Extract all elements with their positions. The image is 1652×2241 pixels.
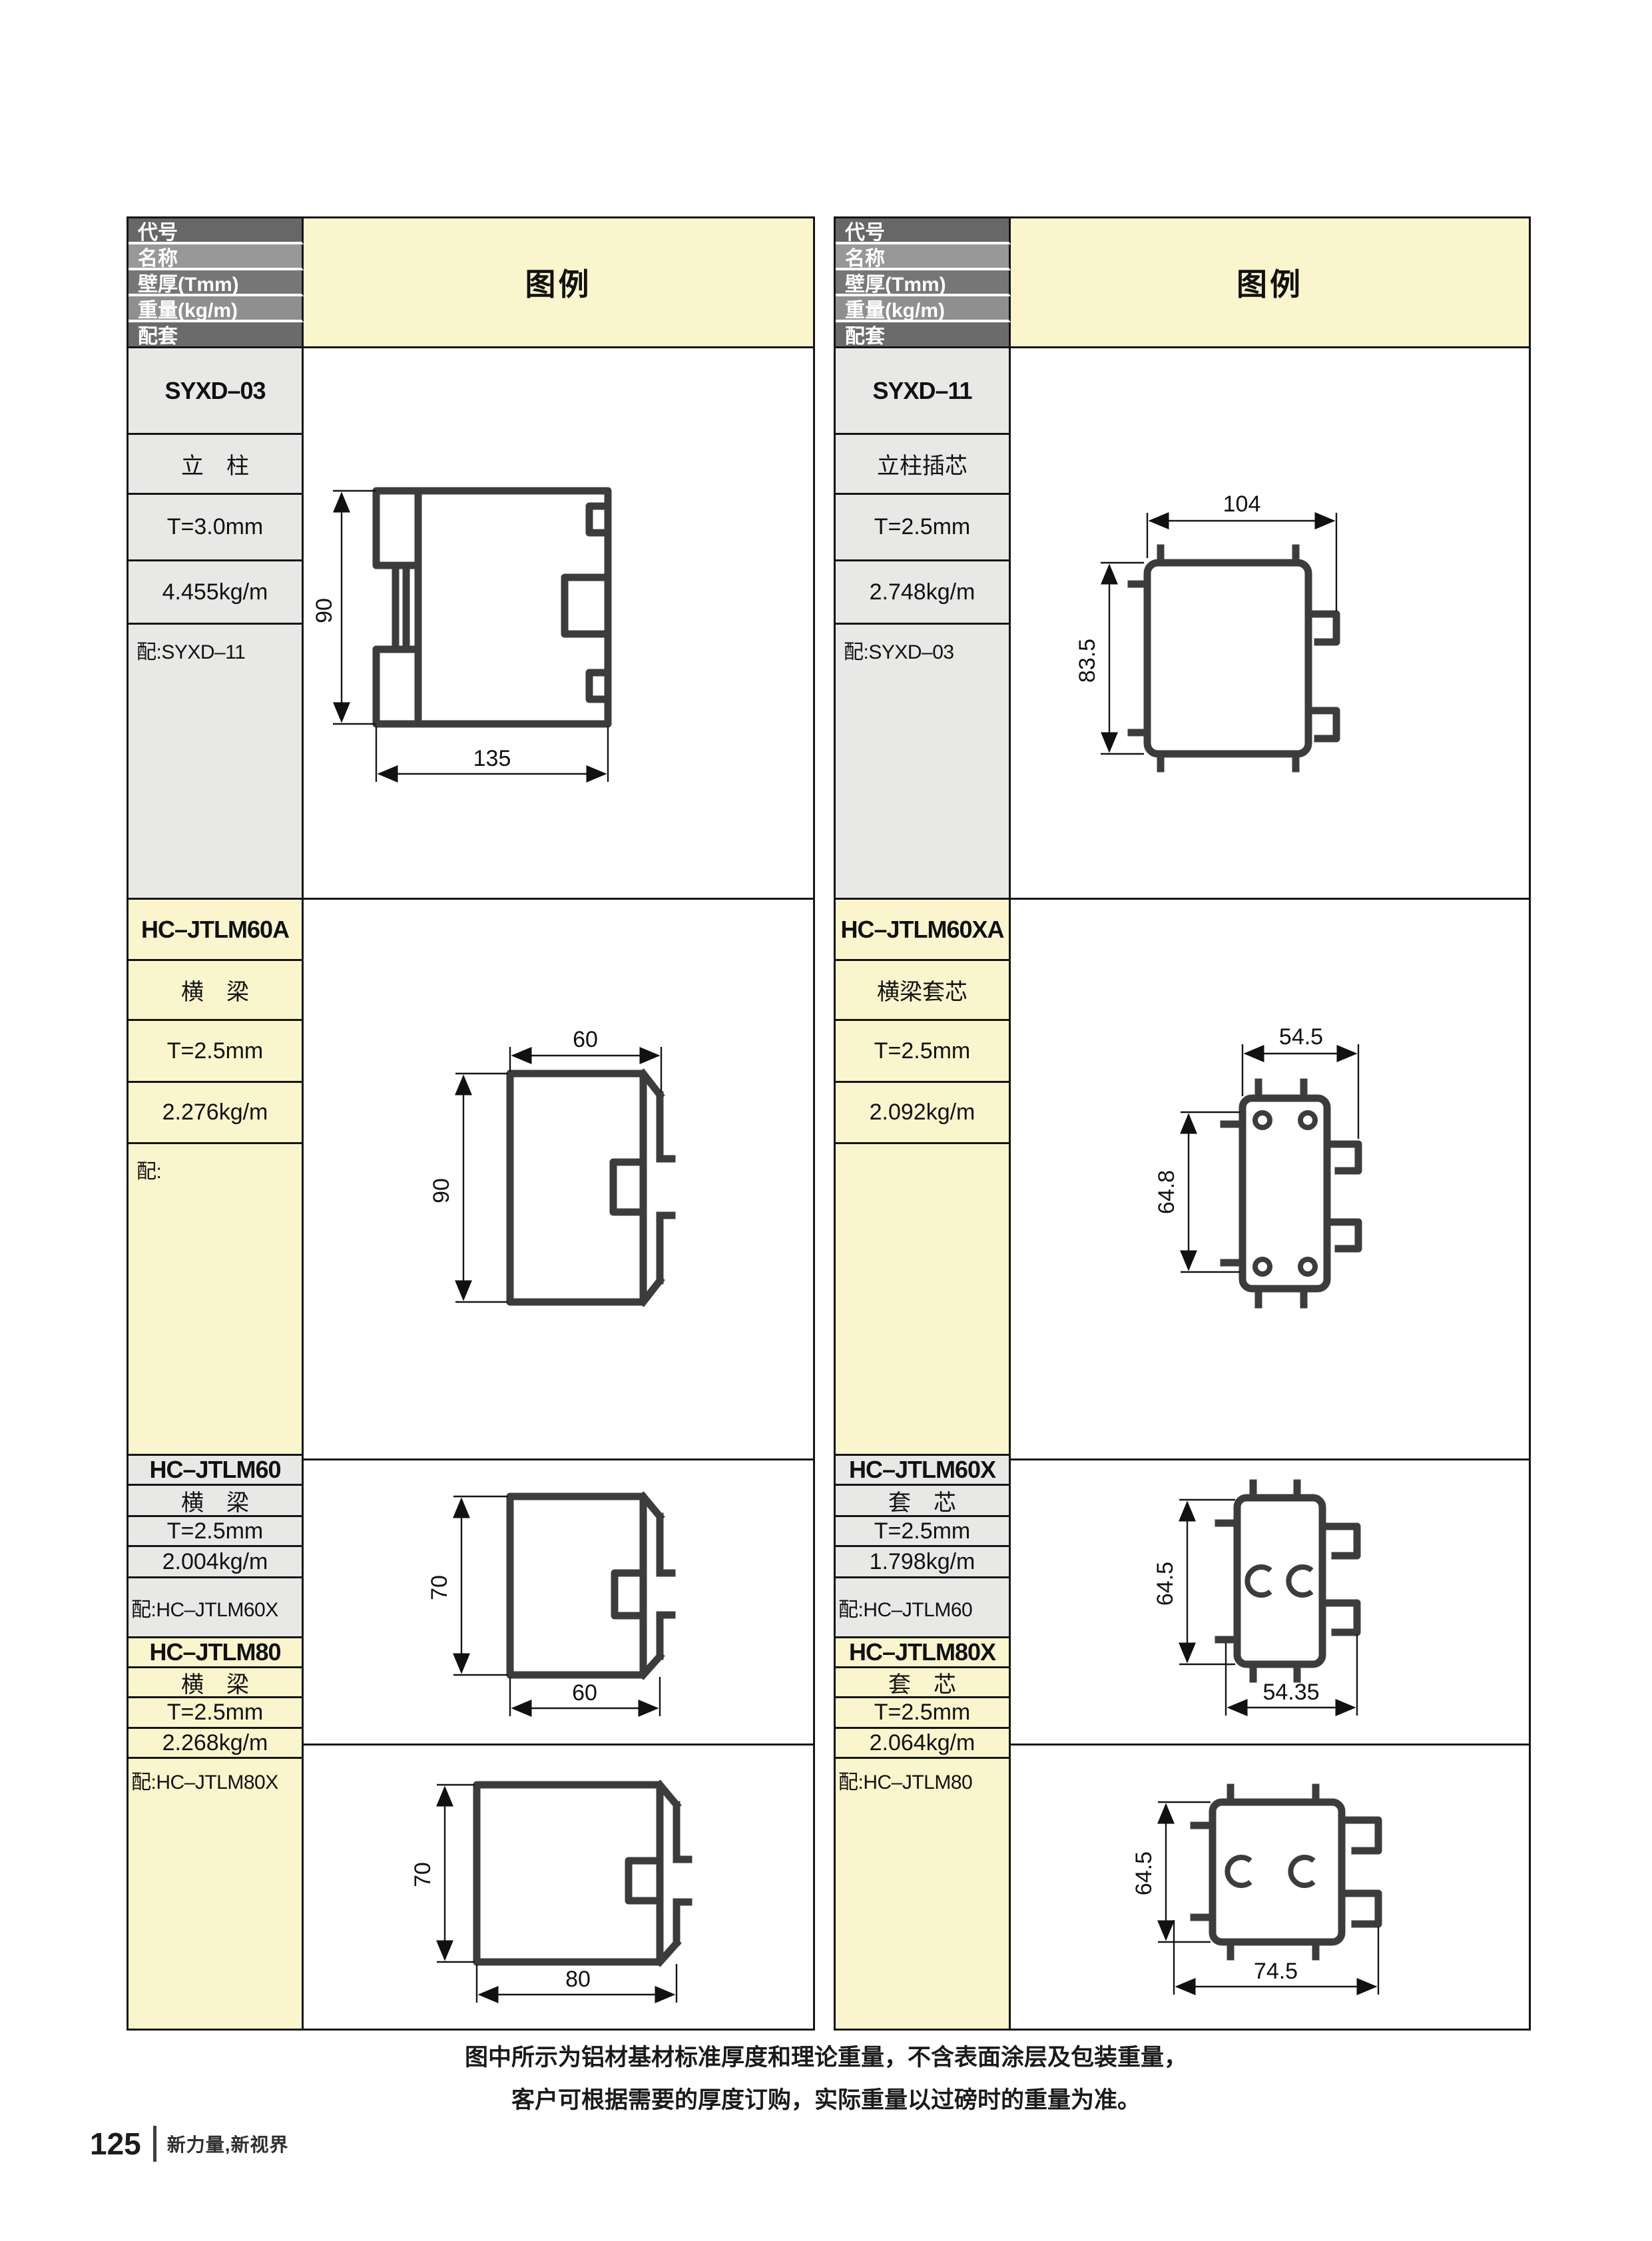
header-cell-thickness: 壁厚(Tmm)	[836, 270, 1011, 296]
corner-holes	[1255, 1113, 1315, 1274]
profile-outline	[1224, 1082, 1358, 1305]
footer-note-line1: 图中所示为铝材基材标准厚度和理论重量，不含表面涂层及包装重量，	[0, 2037, 1652, 2079]
footer-note-line2: 客户可根据需要的厚度订购，实际重量以过磅时的重量为准。	[0, 2079, 1652, 2122]
thickness-cell: T=2.5mm	[836, 495, 1011, 561]
thickness-cell: T=2.5mm	[129, 1021, 304, 1083]
page-footer: 125 新力量,新视界	[90, 2126, 289, 2162]
clip-channels	[1247, 1567, 1312, 1595]
dim-label-height: 70	[410, 1862, 435, 1887]
thickness-cell: T=2.5mm	[836, 1021, 1011, 1083]
dimension-lines	[1101, 513, 1336, 754]
weight-cell: 2.268kg/m	[129, 1729, 304, 1759]
profile-outline	[477, 1785, 688, 1962]
dimension-lines	[437, 1785, 677, 2003]
profile-outline	[510, 1074, 672, 1302]
legend-header-cell: 图例	[1011, 218, 1529, 348]
dim-label-width: 60	[573, 1027, 598, 1052]
weight-cell: 4.455kg/m	[129, 561, 304, 625]
product-name-cell: 横 梁	[129, 1486, 304, 1517]
left-table: 代号 名称 壁厚(Tmm) 重量(kg/m) 配套 图例 SYXD–03 立 柱…	[127, 216, 815, 2031]
dim-label-width: 74.5	[1254, 1959, 1298, 1984]
header-label: 代号	[138, 216, 178, 245]
diagram-cell: 60 90	[304, 900, 813, 1460]
weight-cell: 2.092kg/m	[836, 1083, 1011, 1144]
thickness-cell: T=2.5mm	[836, 1517, 1011, 1547]
product-code-cell: HC–JTLM60X	[836, 1456, 1011, 1486]
header-label: 重量(kg/m)	[845, 294, 945, 323]
right-table: 代号 名称 壁厚(Tmm) 重量(kg/m) 配套 图例 SYXD–11 立柱插…	[834, 216, 1531, 2031]
dim-label-width: 80	[565, 1967, 591, 1992]
header-cell-name: 名称	[129, 244, 304, 270]
weight-cell: 2.064kg/m	[836, 1729, 1011, 1759]
legend-label: 图例	[1237, 260, 1303, 304]
diagram-cell: 104 83.5	[1011, 348, 1529, 900]
profile-diagram-hcjtlm60a: 60 90	[304, 899, 813, 1460]
dim-label-width: 135	[473, 746, 511, 771]
product-name-cell: 横 梁	[129, 961, 304, 1021]
header-cell-weight: 重量(kg/m)	[836, 296, 1011, 322]
weight-cell: 1.798kg/m	[836, 1547, 1011, 1578]
header-label: 代号	[845, 216, 885, 245]
match-cell: 配:HC–JTLM60X	[129, 1578, 304, 1638]
product-name-cell: 横梁套芯	[836, 961, 1011, 1021]
legend-header-cell: 图例	[304, 218, 813, 348]
profile-outline	[1194, 1787, 1378, 1957]
header-cell-name: 名称	[836, 244, 1011, 270]
product-code-cell: SYXD–11	[836, 348, 1011, 435]
dim-label-width: 54.35	[1262, 1680, 1319, 1705]
thickness-cell: T=2.5mm	[129, 1698, 304, 1729]
match-cell: 配:HC–JTLM80	[836, 1759, 1011, 2029]
match-cell: 配:SYXD–03	[836, 625, 1011, 900]
profile-outline	[376, 491, 608, 724]
product-name-cell: 立柱插芯	[836, 435, 1011, 495]
match-cell: 配:	[129, 1144, 304, 1456]
profile-diagram-hcjtlm60: 70 60	[304, 1460, 813, 1745]
product-code-cell: HC–JTLM80X	[836, 1638, 1011, 1668]
product-code-cell: SYXD–03	[129, 348, 304, 435]
match-cell: 配:HC–JTLM60	[836, 1578, 1011, 1638]
dimension-lines	[455, 1047, 661, 1302]
dim-label-width: 60	[572, 1680, 597, 1706]
weight-cell: 2.004kg/m	[129, 1547, 304, 1578]
header-cell-code: 代号	[129, 218, 304, 244]
weight-cell: 2.748kg/m	[836, 561, 1011, 625]
footer-note: 图中所示为铝材基材标准厚度和理论重量，不含表面涂层及包装重量， 客户可根据需要的…	[0, 2037, 1652, 2122]
legend-label: 图例	[525, 260, 592, 304]
thickness-cell: T=2.5mm	[129, 1517, 304, 1547]
clip-channels	[1227, 1857, 1314, 1885]
profile-diagram-syxd03: 90 135	[304, 348, 813, 899]
product-name-cell: 立 柱	[129, 435, 304, 495]
header-label: 配套	[138, 320, 178, 349]
thickness-cell: T=3.0mm	[129, 495, 304, 561]
profile-diagram-hcjtlm60xa: 54.5 64.8	[1011, 899, 1529, 1460]
brand-slogan: 新力量,新视界	[167, 2130, 289, 2157]
header-label: 壁厚(Tmm)	[138, 268, 239, 297]
profile-diagram-syxd11: 104 83.5	[1011, 348, 1529, 899]
weight-cell: 2.276kg/m	[129, 1083, 304, 1144]
header-label: 名称	[138, 242, 178, 271]
match-cell: 配:HC–JTLM80X	[129, 1759, 304, 2029]
profile-outline	[510, 1496, 672, 1675]
header-label: 重量(kg/m)	[138, 294, 238, 323]
header-cell-thickness: 壁厚(Tmm)	[129, 270, 304, 296]
dim-label-height: 83.5	[1075, 638, 1100, 682]
profile-diagram-hcjtlm60x: 64.5 54.35	[1011, 1460, 1529, 1745]
diagram-cell: 64.5 54.35	[1011, 1460, 1529, 1746]
diagram-cell: 90 135	[304, 348, 813, 900]
dim-label-height: 64.5	[1131, 1851, 1157, 1895]
diagram-cell: 70 60	[304, 1460, 813, 1746]
product-code-cell: HC–JTLM60XA	[836, 900, 1011, 961]
diagram-cell: 70 80	[304, 1746, 813, 2029]
diagram-cell: 64.5 74.5	[1011, 1746, 1529, 2029]
product-name-cell: 横 梁	[129, 1668, 304, 1698]
dim-label-width: 54.5	[1279, 1024, 1323, 1050]
dim-label-width: 104	[1223, 491, 1261, 517]
header-cell-match: 配套	[836, 322, 1011, 348]
thickness-cell: T=2.5mm	[836, 1698, 1011, 1729]
profile-diagram-hcjtlm80: 70 80	[304, 1746, 813, 2029]
dim-label-height: 90	[312, 598, 337, 623]
dim-label-height: 64.5	[1153, 1561, 1178, 1605]
dimension-lines	[453, 1496, 660, 1716]
profile-diagram-hcjtlm80x: 64.5 74.5	[1011, 1746, 1529, 2029]
profile-outline	[1131, 548, 1336, 769]
dimension-lines	[1181, 1044, 1358, 1272]
match-cell	[836, 1144, 1011, 1456]
product-code-cell: HC–JTLM80	[129, 1638, 304, 1668]
header-cell-match: 配套	[129, 322, 304, 348]
divider	[153, 2126, 156, 2162]
match-cell: 配:SYXD–11	[129, 625, 304, 900]
header-label: 名称	[845, 242, 885, 271]
product-code-cell: HC–JTLM60A	[129, 900, 304, 961]
product-name-cell: 套 芯	[836, 1668, 1011, 1698]
header-label: 壁厚(Tmm)	[845, 268, 946, 297]
dim-label-height: 90	[429, 1178, 454, 1203]
header-label: 配套	[845, 320, 885, 349]
product-code-cell: HC–JTLM60	[129, 1456, 304, 1486]
header-cell-weight: 重量(kg/m)	[129, 296, 304, 322]
diagram-cell: 54.5 64.8	[1011, 900, 1529, 1460]
page-number: 125	[90, 2126, 141, 2162]
dim-label-height: 64.8	[1154, 1169, 1179, 1213]
product-name-cell: 套 芯	[836, 1486, 1011, 1517]
header-cell-code: 代号	[836, 218, 1011, 244]
dim-label-height: 70	[427, 1575, 452, 1600]
